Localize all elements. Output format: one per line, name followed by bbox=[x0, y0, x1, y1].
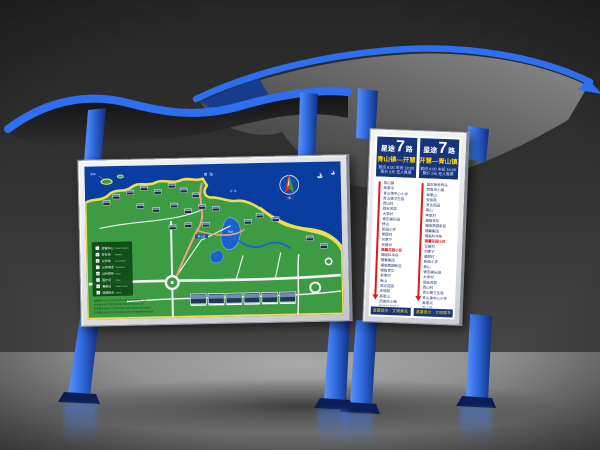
legend-label-zh: 公用电话 bbox=[102, 264, 114, 269]
route-column-return: 星途 7 路 开慧—青山镇 首班 6:00 末班 18:00 票价 2元 无人售… bbox=[413, 138, 459, 317]
station-list-items: 国生船务码头西南风小镇高家山安丽苑滨达花园南山李家村福临世华福临家园新区福馨集团… bbox=[421, 182, 458, 308]
route-header: 星途 7 路 开慧—青山镇 首班 6:00 末班 18:00 票价 2元 无人售… bbox=[418, 138, 459, 179]
route-number: 7 bbox=[438, 141, 447, 156]
route-footer-text: 温馨提示 · 文明乘车 bbox=[373, 308, 409, 313]
sign-board-bus-routes: 星途 7 路 青山镇—开慧 首班 6:00 末班 18:00 票价 2元 无人售… bbox=[362, 128, 469, 326]
route-name-suffix: 路 bbox=[448, 144, 456, 159]
left-sign-leg-left bbox=[68, 318, 99, 396]
legend-label-en: TOILET bbox=[115, 273, 121, 275]
legend-label-zh: 公共厕所 bbox=[102, 271, 114, 276]
route-name: 星途 7 路 bbox=[419, 140, 459, 160]
route-fare: 票价 2元 无人售票 bbox=[376, 170, 416, 176]
route-times-fare: 首班 6:00 末班 18:00 票价 2元 无人售票 bbox=[418, 167, 458, 177]
legend-label-en: TICKET OFFICE bbox=[116, 286, 128, 288]
route-fare: 票价 2元 无人售票 bbox=[418, 171, 458, 177]
route-footer-bar: 温馨提示 · 文明乘车 bbox=[413, 308, 453, 318]
svg-text:青山宫: 青山宫 bbox=[198, 234, 206, 238]
legend-label-en: TOURIST CENTER bbox=[115, 248, 130, 250]
legend-label-zh: 游船码头 bbox=[102, 290, 114, 295]
lake-label: 西湖 bbox=[228, 230, 234, 234]
legend-label-zh: 售票处 bbox=[102, 283, 111, 288]
route-footer-bar: 温馨提示 · 文明乘车 bbox=[371, 306, 411, 316]
station-list-items: 青山镇高家屯青山镇中心小学青山镇卫生院西山村固安风居大李村银杏福乐园移山新园小学… bbox=[379, 181, 416, 307]
island-label: 鸥岛 bbox=[90, 172, 96, 176]
route-number: 7 bbox=[396, 139, 405, 154]
left-sign-leg-right bbox=[324, 318, 350, 402]
station-list: 青山镇高家屯青山镇中心小学青山镇卫生院西山村固安风居大李村银杏福乐园移山新园小学… bbox=[371, 176, 415, 306]
right-sign-leg-right bbox=[466, 314, 492, 400]
legend-label-en: TELEPHONE bbox=[115, 267, 125, 269]
route-direction: 青山镇—开慧 bbox=[376, 156, 416, 164]
route-name-prefix: 星途 bbox=[423, 143, 438, 159]
palace-label-chip: 青山宫 bbox=[195, 234, 208, 238]
route-panel-inner: 星途 7 路 青山镇—开慧 首班 6:00 末班 18:00 票价 2元 无人售… bbox=[369, 134, 462, 319]
map-island bbox=[101, 179, 112, 184]
route-direction: 开慧—青山镇 bbox=[419, 158, 459, 166]
route-footer-text: 温馨提示 · 文明乘车 bbox=[415, 310, 451, 315]
signage-render-scene: 鸥岛 西湖 bbox=[0, 0, 600, 450]
legend-label-zh: 医疗点 bbox=[102, 277, 111, 282]
route-name-suffix: 路 bbox=[405, 143, 413, 158]
map-island bbox=[117, 175, 123, 178]
route-column-outbound: 星途 7 路 青山镇—开慧 首班 6:00 末班 18:00 票价 2元 无人售… bbox=[371, 136, 417, 315]
svg-text:北: 北 bbox=[288, 196, 291, 200]
legend-icon: WC bbox=[96, 274, 100, 276]
legend-label-zh: 公交站 bbox=[102, 258, 111, 263]
tourist-map: 鸥岛 西湖 bbox=[84, 161, 343, 319]
legend-label-zh: 停车场 bbox=[102, 252, 111, 257]
station-list: 国生船务码头西南风小镇高家山安丽苑滨达花园南山李家村福临世华福临家园新区福馨集团… bbox=[413, 178, 457, 308]
map-legend: i游客中心TOURIST CENTERP停车场PARKINGB公交站BUS ST… bbox=[92, 242, 133, 296]
legend-label-en: CLINIC bbox=[116, 280, 122, 282]
legend-label-zh: 游客中心 bbox=[101, 245, 113, 250]
left-sign-post-right-top bbox=[298, 92, 318, 158]
sea-label: 近海 bbox=[230, 189, 238, 193]
sign-board-map: 鸥岛 西湖 bbox=[77, 154, 352, 327]
route-name-prefix: 星途 bbox=[380, 142, 395, 158]
sea-label: 黄海 bbox=[204, 171, 215, 176]
route-times-fare: 首班 6:00 末班 18:00 票价 2元 无人售票 bbox=[376, 165, 416, 175]
route-header: 星途 7 路 青山镇—开慧 首班 6:00 末班 18:00 票价 2元 无人售… bbox=[376, 136, 417, 177]
route-name: 星途 7 路 bbox=[377, 138, 417, 158]
